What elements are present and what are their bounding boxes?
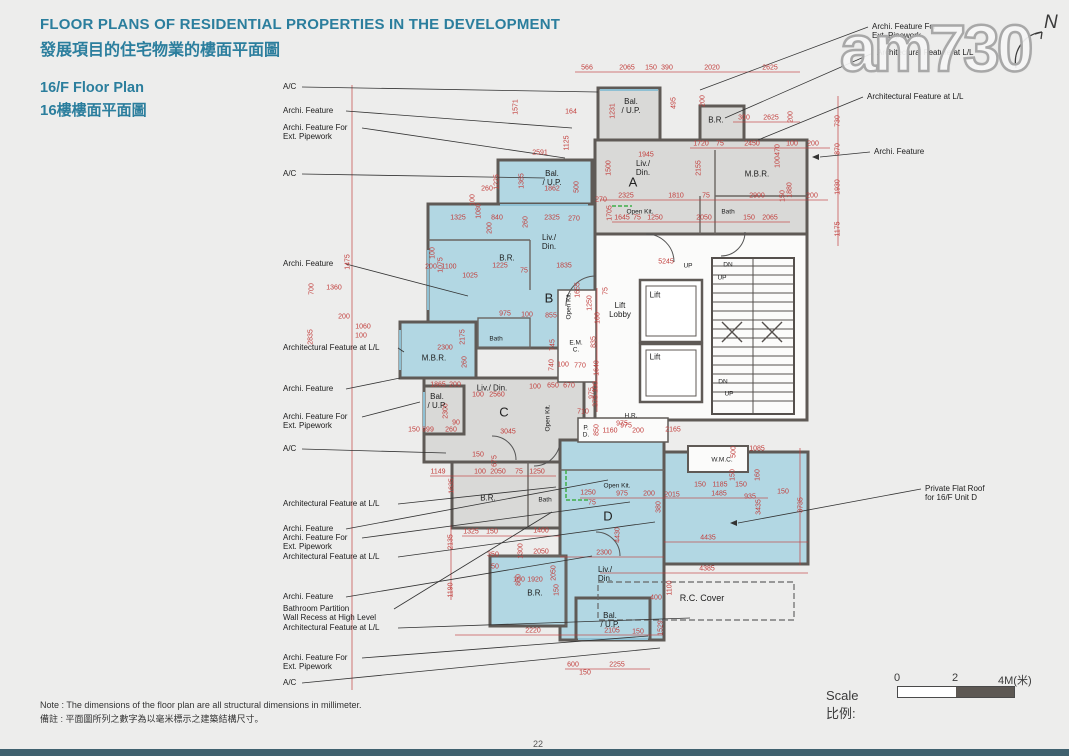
dimension-label: 2450 — [744, 141, 760, 148]
dimension-label: 200 — [487, 222, 494, 234]
dimension-label: 75 — [515, 469, 523, 476]
callout-label: Architectural Feature at L/L — [283, 499, 380, 508]
room-label: Lift — [650, 290, 661, 299]
dimension-label: 1475 — [345, 254, 352, 270]
brochure-page: FLOOR PLANS OF RESIDENTIAL PROPERTIES IN… — [0, 0, 1069, 756]
dimension-label: 1149 — [430, 469, 445, 476]
dimension-label: 1945 — [638, 152, 654, 159]
dimension-label: 2300 — [437, 345, 453, 352]
room-label: R.C. Cover — [680, 593, 725, 603]
dimension-label: 100 — [521, 312, 533, 319]
footnote-en: Note : The dimensions of the floor plan … — [40, 699, 361, 713]
callout-label: Archi. Feature ForExt. Pipework — [283, 123, 347, 142]
room-label: P.D. — [583, 425, 590, 440]
callout-label: A/C — [283, 82, 296, 91]
room-label: Open Kit. — [626, 208, 653, 215]
dimension-label: 150 — [472, 452, 484, 459]
scale-tick-0: 0 — [894, 672, 900, 684]
dimension-label: 75 — [716, 141, 724, 148]
callout-label: Architectural Feature at L/L — [283, 343, 380, 352]
dimension-label: 260 — [445, 427, 457, 434]
dimension-label: 1300 — [518, 543, 525, 559]
dimension-label: 2155 — [696, 160, 703, 176]
unit-letter: C — [499, 405, 508, 420]
room-label: H.R. — [625, 412, 638, 419]
dimension-label: 835 — [591, 336, 598, 348]
dimension-label: 150 — [730, 469, 737, 481]
dimension-label: 1175 — [835, 221, 842, 236]
dimension-label: 1500 — [606, 160, 613, 176]
dimension-label: 1085 — [749, 446, 765, 453]
callout-label: A/C — [283, 678, 296, 687]
dimension-label: 855 — [545, 313, 557, 320]
dimension-label: 3435 — [756, 499, 763, 515]
dimension-label: 150 — [554, 584, 561, 596]
footnote: Note : The dimensions of the floor plan … — [40, 699, 361, 726]
room-label: Bath — [538, 496, 551, 503]
dimension-label: 3735 — [798, 497, 805, 513]
callout-label: Bathroom PartitionWall Recess at High Le… — [283, 604, 376, 623]
dimension-label: 90 — [452, 420, 460, 427]
dimension-label: 770 — [574, 363, 586, 370]
page-number: 22 — [528, 739, 548, 749]
dimension-label: 200 — [806, 193, 818, 200]
dimension-label: 500 — [574, 181, 581, 193]
callout-label: Archi. Feature — [283, 106, 333, 115]
room-label: DN — [723, 261, 732, 268]
dimension-label: 2591 — [532, 150, 548, 157]
unit-letter: D — [603, 509, 612, 524]
dimension-label: 150 — [735, 482, 747, 489]
dimension-label: 2300 — [596, 550, 612, 557]
dimension-label: 470 — [775, 144, 782, 156]
dimension-label: 975 — [499, 311, 511, 318]
callout-label: Archi. Feature ForExt. Pipework — [283, 412, 347, 431]
room-label: Bal./ U.P. — [543, 169, 562, 187]
dimension-label: 150 — [408, 427, 420, 434]
dimension-label: 4435 — [700, 535, 716, 542]
dimension-label: 100 — [595, 312, 602, 324]
dimension-label: 150 — [780, 190, 787, 202]
dimension-label: 1225 — [492, 263, 508, 270]
dimension-label: 1250 — [587, 295, 594, 311]
dimension-label: 1810 — [668, 193, 684, 200]
dimension-label: 100 — [557, 362, 569, 369]
dimension-label: 100 — [474, 469, 486, 476]
room-label: UP — [724, 390, 733, 397]
dimension-label: 350 — [487, 552, 499, 559]
dimension-label: 1655 — [575, 282, 582, 298]
dimension-label: 1060 — [355, 324, 371, 331]
dimension-label: 4385 — [699, 566, 715, 573]
callout-label: Archi. Feature ForExt. Pipework — [283, 533, 347, 552]
dimension-label: 3045 — [500, 429, 516, 436]
dimension-label: 566 — [581, 65, 593, 72]
dimension-label: 1025 — [462, 273, 478, 280]
dimension-label: 390 — [661, 65, 673, 72]
scale-tick-2: 2 — [952, 672, 958, 684]
dimension-label: 670 — [563, 383, 575, 390]
dimension-label: 2165 — [665, 427, 681, 434]
dimension-label: 160 — [755, 469, 762, 481]
dimension-label: 75 — [520, 268, 528, 275]
room-label: Lift — [650, 352, 661, 361]
dimension-label: 1231 — [610, 103, 617, 119]
dimension-label: 975 — [616, 491, 628, 498]
dimension-label: 1705 — [607, 205, 614, 221]
dimension-label: 200 — [700, 95, 707, 107]
watermark: am730 — [840, 10, 1069, 86]
dimension-label: 200 — [338, 314, 350, 321]
callout-label: Architectural Feature at L/L — [867, 92, 964, 101]
callout-label: Archi. Feature — [874, 147, 924, 156]
callout-label: Archi. Feature — [283, 259, 333, 268]
dimension-label: 1880 — [787, 182, 794, 198]
dimension-label: 1100 — [441, 264, 456, 271]
callout-label: A/C — [283, 444, 296, 453]
plan-annotations: 5662065150390202026251571164112525911231… — [0, 0, 1069, 756]
dimension-label: 200 — [632, 428, 644, 435]
dimension-label: 1125 — [564, 135, 571, 150]
room-label: B.R. — [527, 588, 543, 597]
dimension-label: 200 — [425, 264, 437, 271]
scale-label: Scale 比例: — [826, 688, 859, 722]
room-label: Bath — [721, 208, 734, 215]
room-label: E.M.C. — [569, 340, 582, 355]
room-label: UP — [717, 274, 726, 281]
dimension-label: 1250 — [580, 490, 596, 497]
callout-label: A/C — [283, 169, 296, 178]
dimension-label: 75 — [588, 500, 596, 507]
dimension-label: 1920 — [527, 577, 543, 584]
room-label: Open Kit. — [565, 292, 572, 319]
dimension-label: 2020 — [704, 65, 720, 72]
dimension-label: 740 — [549, 359, 556, 371]
dimension-label: 1865 — [430, 382, 446, 389]
callout-label: Archi. Feature — [283, 384, 333, 393]
dimension-label: 400 — [650, 595, 662, 602]
dimension-label: 1225 — [494, 174, 501, 190]
dimension-label: 2050 — [696, 215, 712, 222]
room-label: DN — [718, 378, 727, 385]
dimension-label: 495 — [671, 97, 678, 109]
dimension-label: 1529 — [658, 620, 665, 636]
dimension-label: 840 — [491, 215, 503, 222]
dimension-label: 975 — [589, 387, 596, 399]
dimension-label: 100 — [430, 247, 437, 259]
room-label: Bal./ U.P. — [622, 97, 641, 115]
room-label: Open Kit. — [603, 482, 630, 489]
dimension-label: 2255 — [609, 662, 625, 669]
room-label: Liv./Din. — [636, 159, 650, 177]
room-label: B.R. — [499, 253, 515, 262]
dimension-label: 745 — [550, 339, 557, 351]
dimension-label: 300 — [738, 115, 750, 122]
unit-letter: B — [545, 291, 554, 306]
dimension-label: 675 — [492, 455, 499, 467]
room-label: B.R. — [480, 493, 496, 502]
room-label: B.R. — [708, 115, 724, 124]
dimension-label: 200 — [643, 491, 655, 498]
dimension-label: 4430 — [615, 527, 622, 543]
dimension-label: 1185 — [712, 482, 727, 489]
dimension-label: 200 — [449, 382, 461, 389]
dimension-label: 2175 — [460, 329, 467, 345]
dimension-label: 700 — [309, 283, 316, 295]
dimension-label: 380 — [656, 501, 663, 513]
dimension-label: 2065 — [762, 215, 778, 222]
footnote-zh: 備註 : 平面圖所列之數字為以毫米標示之建築結構尺寸。 — [40, 713, 361, 727]
dimension-label: 1160 — [602, 428, 617, 435]
dimension-label: 164 — [565, 109, 577, 116]
room-label: Bal./ U.P. — [428, 392, 447, 410]
callout-label: Private Flat Rooffor 16/F Unit D — [925, 484, 985, 503]
dimension-label: 2135 — [448, 534, 455, 550]
dimension-label: 2015 — [664, 492, 680, 499]
dimension-label: 100 — [355, 333, 367, 340]
dimension-label: 260 — [481, 186, 493, 193]
dimension-label: 1930 — [835, 179, 842, 195]
dimension-label: 2050 — [533, 549, 549, 556]
dimension-label: 935 — [744, 494, 756, 501]
dimension-label: 1190 — [448, 582, 455, 597]
dimension-label: 2325 — [544, 215, 560, 222]
dimension-label: 1360 — [326, 285, 342, 292]
dimension-label: 1485 — [711, 491, 727, 498]
callout-label: Archi. Feature ForExt. Pipework — [283, 653, 347, 672]
dimension-label: 1635 — [449, 478, 456, 494]
dimension-label: 260 — [462, 356, 469, 368]
room-label: M.B.R. — [422, 353, 446, 362]
unit-letter: A — [629, 175, 638, 190]
dimension-label: 1250 — [529, 469, 545, 476]
dimension-label: 1400 — [533, 528, 549, 535]
dimension-label: 850 — [594, 424, 601, 436]
dimension-label: 200 — [807, 141, 819, 148]
room-label: Bal./ U.P. — [601, 611, 620, 629]
dimension-label: 2900 — [749, 193, 765, 200]
room-label: Open Kit. — [544, 404, 551, 431]
dimension-label: 2325 — [618, 193, 634, 200]
dimension-label: 730 — [835, 115, 842, 127]
dimension-label: 2625 — [763, 115, 779, 122]
dimension-label: 75 — [603, 287, 610, 295]
dimension-label: 975 — [616, 421, 628, 428]
dimension-label: 270 — [568, 216, 580, 223]
dimension-label: 150 — [777, 489, 789, 496]
callout-label: Archi. Feature — [283, 592, 333, 601]
dimension-label: 1720 — [693, 141, 709, 148]
room-label: M.B.R. — [745, 169, 769, 178]
dimension-label: 2050 — [551, 565, 558, 581]
dimension-label: 650 — [547, 383, 559, 390]
dimension-label: 150 — [486, 529, 498, 536]
dimension-label: 710 — [577, 409, 589, 416]
dimension-label: 260 — [523, 216, 530, 228]
room-label: Liv./Din. — [542, 233, 556, 251]
dimension-label: 2220 — [525, 628, 541, 635]
dimension-label: 1571 — [513, 99, 520, 115]
room-label: UP — [683, 262, 692, 269]
dimension-label: 150 — [645, 65, 657, 72]
dimension-label: 999 — [422, 427, 434, 434]
dimension-label: 1100 — [667, 580, 674, 595]
dimension-label: 150 — [579, 670, 591, 677]
dimension-label: 150 — [694, 482, 706, 489]
dimension-label: 2065 — [619, 65, 635, 72]
dimension-label: 1325 — [463, 529, 479, 536]
dimension-label: 1325 — [450, 215, 466, 222]
dimension-label: 1835 — [556, 263, 572, 270]
room-label: Liv./ Din. — [477, 383, 508, 392]
dimension-label: 100 — [786, 141, 798, 148]
dimension-label: 5245 — [658, 259, 674, 266]
dimension-label: 2050 — [490, 469, 506, 476]
callout-label: Architectural Feature at L/L — [283, 623, 380, 632]
dimension-label: 870 — [835, 143, 842, 155]
dimension-label: 50 — [491, 564, 499, 571]
room-label: Liv./Din. — [598, 565, 612, 583]
dimension-label: 1080 — [476, 203, 483, 219]
footer-bar — [0, 749, 1069, 756]
dimension-label: 100 — [775, 156, 782, 168]
dimension-label: 150 — [632, 629, 644, 636]
dimension-label: 200 — [788, 111, 795, 123]
dimension-label: 600 — [567, 662, 579, 669]
dimension-label: 150 — [743, 215, 755, 222]
callout-label: Architectural Feature at L/L — [283, 552, 380, 561]
dimension-label: 75 — [702, 193, 710, 200]
dimension-label: 270 — [595, 197, 607, 204]
room-label: Bath — [489, 335, 502, 342]
dimension-label: 100 — [513, 577, 525, 584]
dimension-label: 100 — [529, 384, 541, 391]
scale-bar-graphic — [897, 686, 1015, 698]
dimension-label: 2625 — [762, 65, 778, 72]
dimension-label: 1640 — [594, 360, 601, 376]
room-label: LiftLobby — [609, 301, 631, 319]
dimension-label: 1365 — [519, 173, 526, 189]
room-label: W.M.C. — [711, 456, 732, 463]
